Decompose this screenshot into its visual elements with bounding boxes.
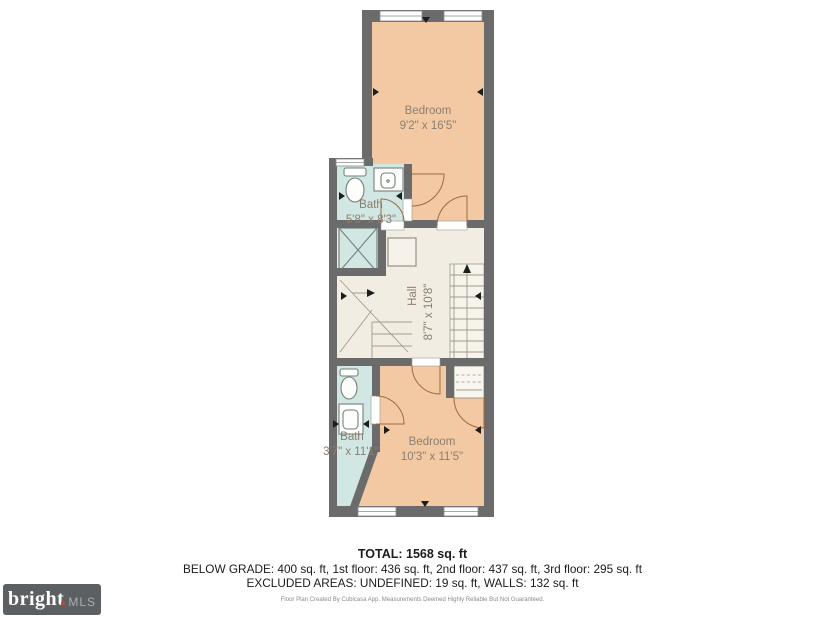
room-dims: 9'2" x 16'5" [400, 120, 457, 132]
room-label: Hall [407, 286, 419, 306]
room-label: Bath [359, 199, 383, 211]
bright-mls-logo: bright MLS [3, 584, 101, 615]
toilet-icon [344, 168, 366, 176]
disclaimer-text: Floor Plan Created By Cubicasa App. Meas… [0, 597, 825, 603]
floor-areas-text: BELOW GRADE: 400 sq. ft, 1st floor: 436 … [0, 562, 825, 576]
room-label: Bath [340, 431, 364, 443]
logo-suffix-text: MLS [68, 595, 96, 609]
staircase-right [450, 264, 484, 362]
hall-closet-box [388, 238, 416, 266]
room-dims: 8'7" x 10'8" [423, 284, 435, 341]
total-area-text: TOTAL: 1568 sq. ft [0, 547, 825, 562]
room-dims: 5'8" x 8'3" [346, 214, 396, 226]
floor-plan-page: Bedroom 9'2" x 16'5" Bath 5'8" x 8'3" Ha… [0, 0, 825, 619]
room-label: Bedroom [405, 105, 452, 117]
room-dims: 3'7" x 11'1" [323, 446, 379, 458]
room-label: Bedroom [409, 436, 456, 448]
logo-spark-icon [61, 601, 65, 605]
room-dims: 10'3" x 11'5" [401, 451, 463, 463]
bedroom-closet [454, 366, 484, 398]
area-summary: TOTAL: 1568 sq. ft BELOW GRADE: 400 sq. … [0, 547, 825, 603]
faucet-icon [387, 180, 389, 182]
floor-plan: Bedroom 9'2" x 16'5" Bath 5'8" x 8'3" Ha… [0, 0, 825, 619]
logo-brand-text: bright [8, 588, 64, 611]
shower [339, 228, 377, 272]
toilet-icon [341, 377, 357, 399]
toilet-icon [340, 369, 358, 376]
excluded-areas-text: EXCLUDED AREAS: UNDEFINED: 19 sq. ft, WA… [0, 576, 825, 590]
